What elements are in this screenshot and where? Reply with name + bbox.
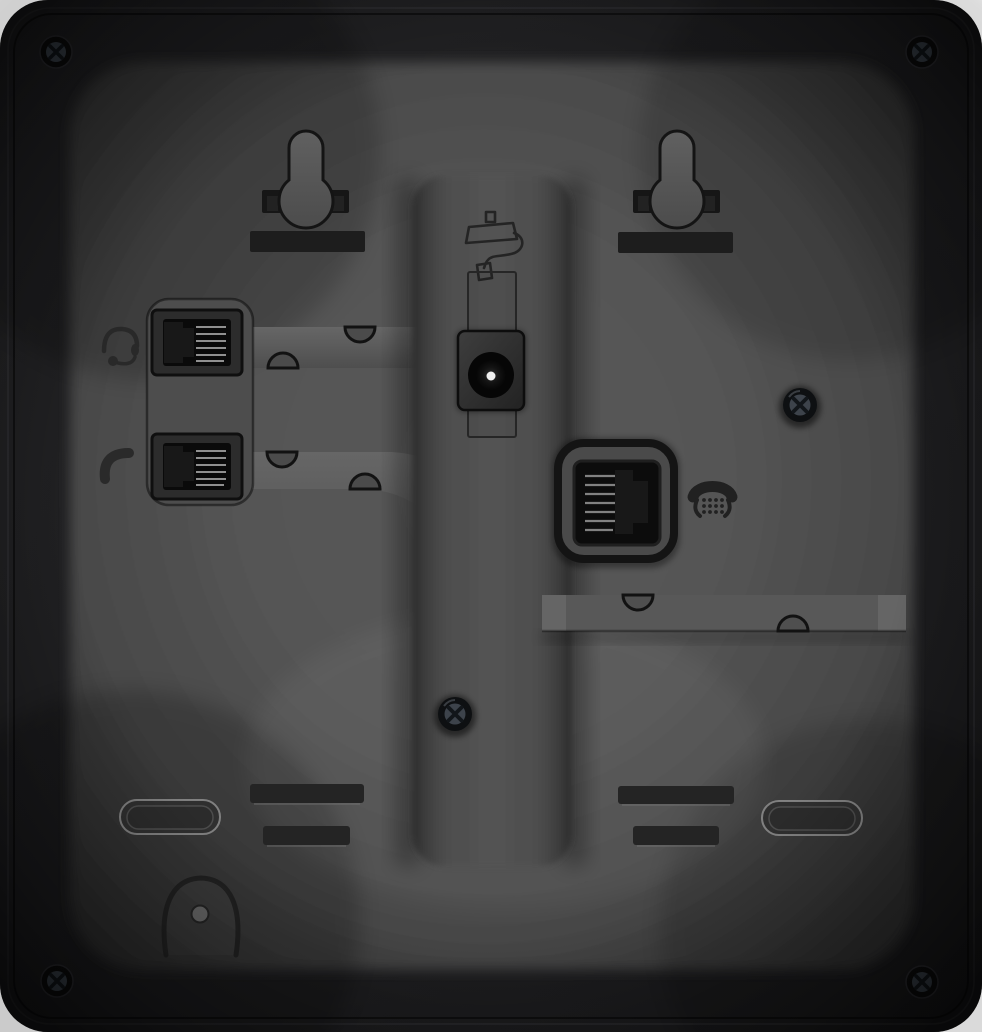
photo-vignette bbox=[0, 0, 982, 1032]
device-photo bbox=[0, 0, 982, 1032]
phone-rear-view bbox=[0, 0, 982, 1032]
